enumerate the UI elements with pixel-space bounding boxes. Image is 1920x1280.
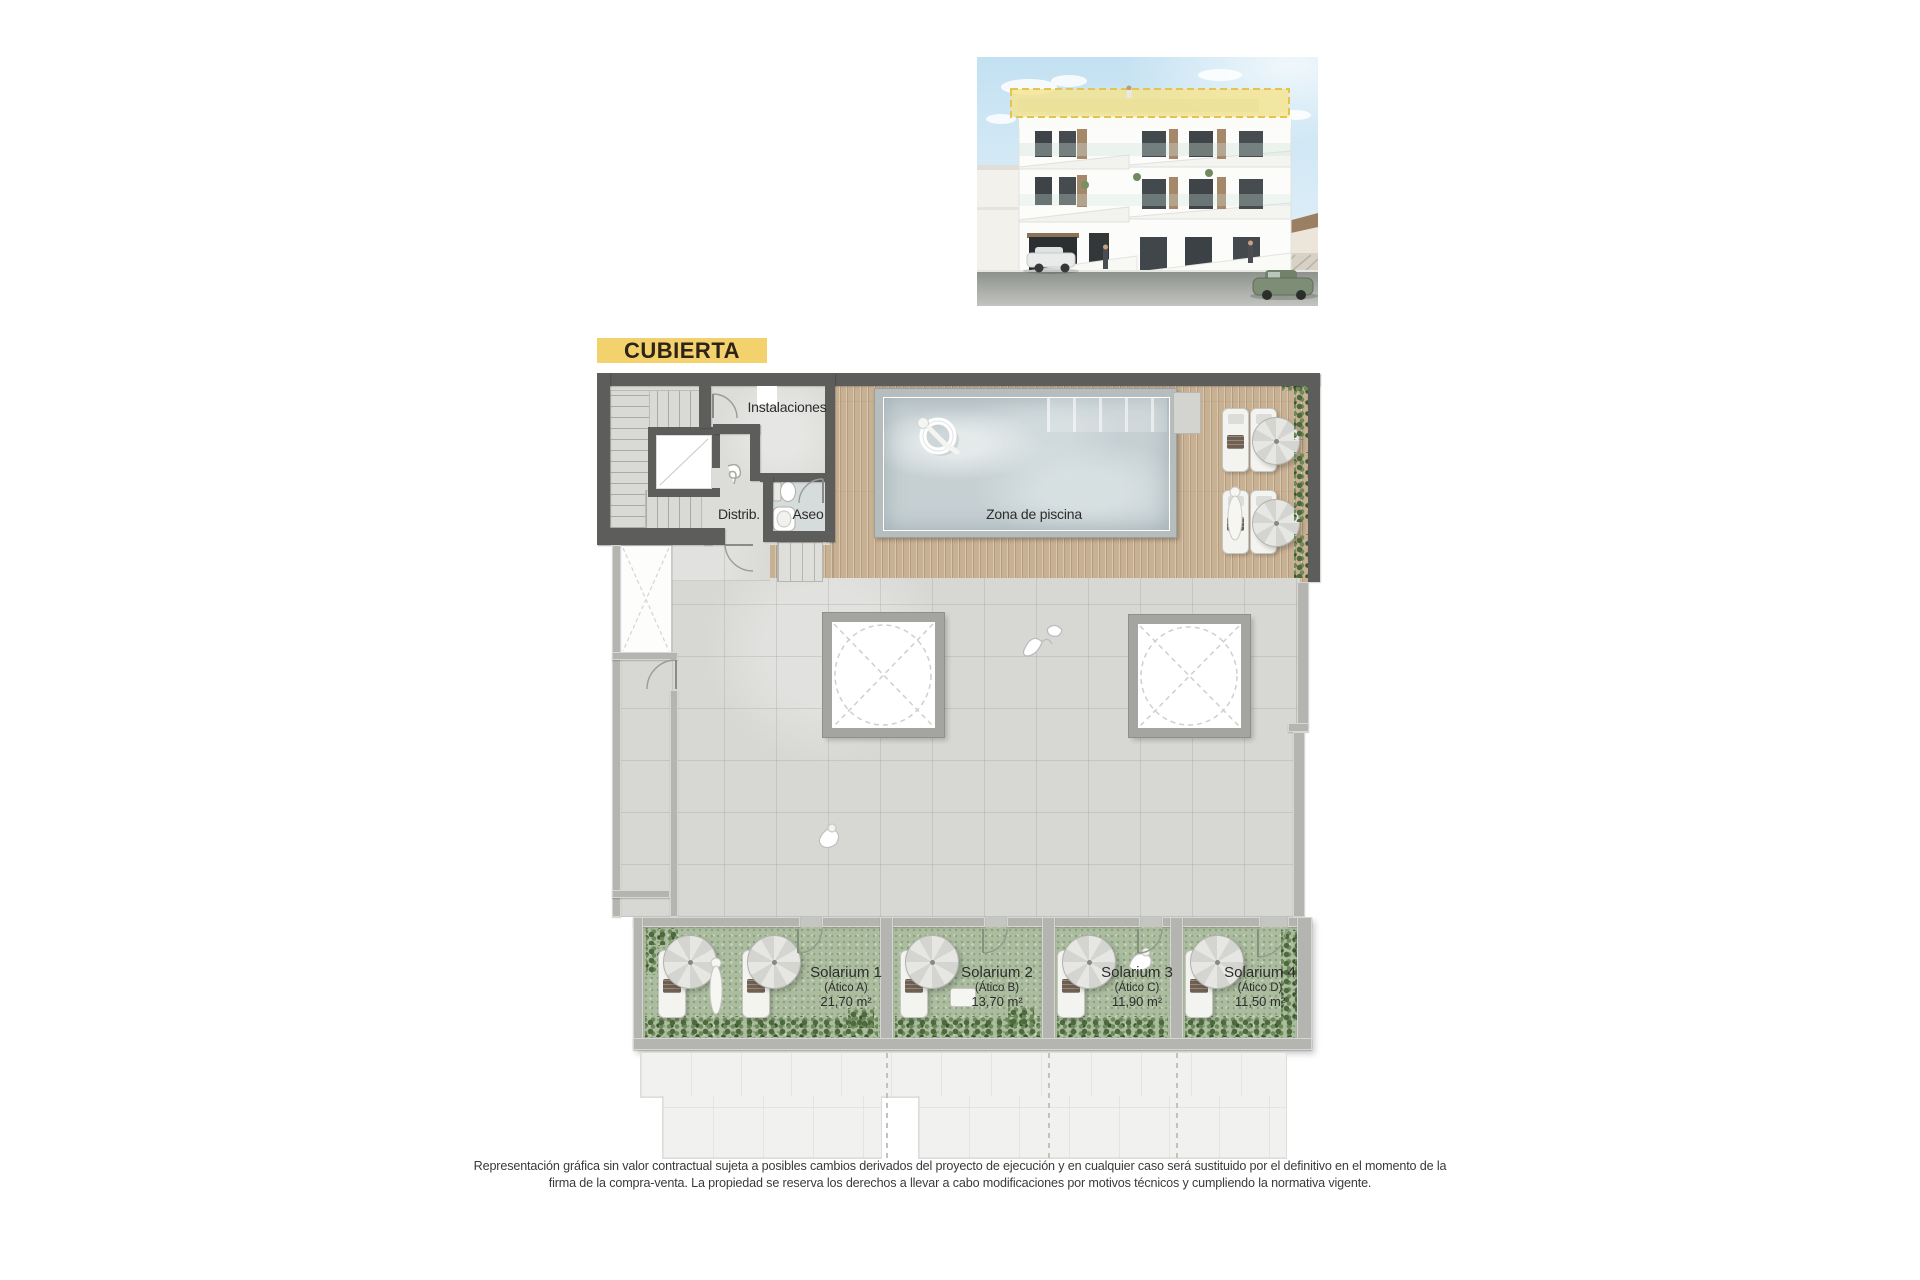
door-arc xyxy=(711,392,739,420)
plants xyxy=(1185,1016,1295,1037)
door-arc xyxy=(645,658,678,692)
wall-segment xyxy=(612,890,670,898)
solarium-unit: (Ático B) xyxy=(942,982,1052,995)
wall-segment xyxy=(633,917,643,1048)
plants xyxy=(1294,452,1309,522)
pool-steps xyxy=(1047,398,1167,432)
solarium-4-label: Solarium 4 (Ático D) 11,50 m² xyxy=(1205,965,1315,1009)
lower-floor-outline xyxy=(918,1096,1287,1159)
room-label-aseo: Aseo xyxy=(785,506,831,522)
parasol-icon xyxy=(1252,417,1300,465)
solarium-name: Solarium 2 xyxy=(942,965,1052,982)
deck-steps xyxy=(777,542,823,582)
lower-floor-outline xyxy=(640,1052,1287,1098)
solarium-name: Solarium 3 xyxy=(1082,965,1192,982)
lower-floor-outline xyxy=(662,1096,882,1159)
elevator-shaft xyxy=(648,427,720,497)
wall-segment xyxy=(633,1038,1312,1050)
solarium-unit: (Ático C) xyxy=(1082,982,1192,995)
room-label-instalaciones: Instalaciones xyxy=(737,399,837,415)
wall-segment xyxy=(1297,582,1309,727)
wall-segment xyxy=(1308,373,1320,582)
coat-hook-icon xyxy=(722,462,746,491)
solarium-2-label: Solarium 2 (Ático B) 13,70 m² xyxy=(942,965,1052,1009)
stairs xyxy=(610,390,650,529)
parasol-icon xyxy=(1252,499,1300,547)
floor-plan: Instalaciones Distrib. Aseo Zona de pisc… xyxy=(0,0,1920,1280)
wall-segment xyxy=(1007,917,1140,927)
person-standing-icon xyxy=(706,956,726,1021)
plants xyxy=(645,1016,878,1037)
solarium-name: Solarium 4 xyxy=(1205,965,1315,982)
room-label-distrib: Distrib. xyxy=(705,506,773,522)
dashed-projection-line xyxy=(886,1052,888,1158)
room-label-pool: Zona de piscina xyxy=(950,506,1118,522)
wall-segment xyxy=(597,373,610,545)
person-lying-icon xyxy=(1224,486,1246,549)
void-area xyxy=(620,545,672,654)
shower-pad xyxy=(1173,392,1201,434)
wall-segment xyxy=(612,545,621,917)
solarium-3-label: Solarium 3 (Ático C) 11,90 m² xyxy=(1082,965,1192,1009)
wall-segment xyxy=(750,424,760,481)
wall-segment xyxy=(597,373,1320,386)
swimmer-on-float-icon xyxy=(905,410,967,467)
solarium-area: 11,50 m² xyxy=(1205,995,1315,1010)
plants xyxy=(848,1008,874,1028)
stairs xyxy=(645,390,702,429)
solarium-1-label: Solarium 1 (Ático A) 21,70 m² xyxy=(791,965,901,1009)
plants xyxy=(1294,534,1309,578)
solarium-unit: (Ático A) xyxy=(791,982,901,995)
door-arc xyxy=(797,477,825,505)
door-arc xyxy=(796,927,824,955)
wall-segment xyxy=(703,528,725,545)
solarium-name: Solarium 1 xyxy=(791,965,901,982)
solarium-unit: (Ático D) xyxy=(1205,982,1315,995)
wall-segment xyxy=(763,531,833,542)
wall-segment xyxy=(597,528,712,545)
solarium-area: 11,90 m² xyxy=(1082,995,1192,1010)
door-arc xyxy=(1136,927,1164,955)
dashed-projection-line xyxy=(1048,1052,1050,1158)
person-walking-icon xyxy=(816,820,844,857)
wall-segment xyxy=(822,917,985,927)
door-arc xyxy=(1256,927,1288,959)
door-arc xyxy=(981,927,1009,955)
elevator-door-opening xyxy=(712,468,720,488)
door-arc xyxy=(723,543,755,573)
wall-segment xyxy=(1288,723,1309,732)
plants xyxy=(1057,1016,1168,1037)
dashed-projection-line xyxy=(1176,1052,1178,1158)
solarium-area: 21,70 m² xyxy=(791,995,901,1010)
wall-segment xyxy=(633,917,800,927)
solarium-area: 13,70 m² xyxy=(942,995,1052,1010)
sun-lounger xyxy=(1222,408,1249,472)
disclaimer-line-1: Representación gráfica sin valor contrac… xyxy=(410,1158,1510,1175)
wall-segment xyxy=(699,386,711,428)
wall-segment xyxy=(670,690,678,917)
brochure-page: CUBIERTA xyxy=(0,0,1920,1280)
seagulls-icon xyxy=(1018,620,1066,671)
disclaimer-line-2: firma de la compra-venta. La propiedad s… xyxy=(410,1175,1510,1192)
skylight xyxy=(823,613,944,737)
wall-segment xyxy=(1293,732,1305,917)
skylight xyxy=(1129,615,1250,737)
